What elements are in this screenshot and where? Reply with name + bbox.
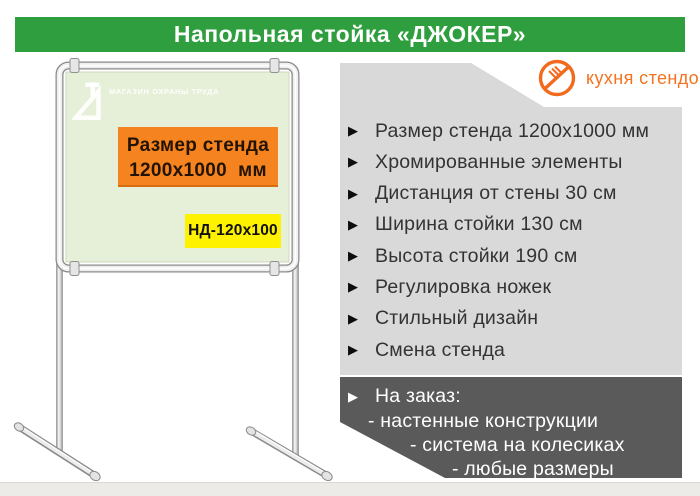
no-kitchen-icon (536, 57, 578, 99)
feature-text: Дистанция от стены 30 см (375, 182, 617, 205)
triangle-bullet-icon: ▶ (348, 342, 364, 358)
custom-order-title-row: ▶ На заказ: (348, 385, 461, 408)
custom-order-item: - любые размеры (452, 457, 625, 481)
features-list: ▶ Размер стенда 1200х1000 мм ▶ Хромирова… (348, 63, 649, 369)
product-flyer: Напольная стойка «ДЖОКЕР» (0, 0, 700, 496)
custom-order-item: - настенные конструкции (368, 409, 625, 433)
feature-item: ▶ Смена стенда (348, 338, 649, 362)
feature-item: ▶ Регулировка ножек (348, 275, 649, 299)
feature-item: ▶ Стильный дизайн (348, 307, 649, 331)
triangle-bullet-icon: ▶ (348, 123, 364, 139)
triangle-bullet-icon: ▶ (348, 311, 364, 327)
feature-item: ▶ Размер стенда 1200х1000 мм (348, 119, 649, 143)
brand-name: кухня стендов (586, 68, 700, 89)
page-bottom-edge (0, 482, 700, 496)
feature-text: Смена стенда (375, 339, 505, 362)
feature-text: Хромированные элементы (375, 151, 623, 174)
triangle-bullet-icon: ▶ (348, 217, 364, 233)
triangle-bullet-icon: ▶ (348, 248, 364, 264)
model-plate: НД-120х100 (185, 214, 281, 248)
brand-logo: кухня стендов (536, 57, 700, 99)
board-logo: МАГАЗИН ОХРАНЫ ТРУДА (72, 80, 219, 122)
right-foot (245, 425, 334, 482)
triangle-bullet-icon: ▶ (348, 154, 364, 170)
size-plate-line1: Размер стенда (118, 133, 278, 158)
feature-text: Стильный дизайн (375, 307, 538, 330)
title-banner: Напольная стойка «ДЖОКЕР» (15, 17, 685, 52)
custom-order-box: ▶ На заказ: - настенные конструкции- сис… (340, 377, 682, 478)
feature-item: ▶ Высота стойки 190 см (348, 244, 649, 268)
page-title: Напольная стойка «ДЖОКЕР» (174, 21, 526, 47)
custom-order-title: На заказ: (375, 385, 461, 408)
feature-text: Высота стойки 190 см (375, 245, 578, 268)
feature-item: ▶ Дистанция от стены 30 см (348, 182, 649, 206)
triangle-bullet-icon: ▶ (348, 279, 364, 295)
feature-text: Регулировка ножек (375, 276, 551, 299)
size-plate-line2: 1200х1000 мм (118, 158, 278, 183)
feature-text: Ширина стойки 130 см (375, 213, 583, 236)
feature-item: ▶ Ширина стойки 130 см (348, 213, 649, 237)
size-plate: Размер стенда 1200х1000 мм (118, 127, 278, 187)
custom-order-list: - настенные конструкции- система на коле… (368, 409, 625, 481)
shop-logo-text: МАГАЗИН ОХРАНЫ ТРУДА (109, 87, 219, 122)
feature-item: ▶ Хромированные элементы (348, 150, 649, 174)
features-panel: ▶ Размер стенда 1200х1000 мм ▶ Хромирова… (340, 63, 682, 375)
shop-logo-icon (72, 80, 102, 122)
triangle-bullet-icon: ▶ (348, 186, 364, 202)
triangle-bullet-icon: ▶ (348, 389, 364, 405)
feature-text: Размер стенда 1200х1000 мм (375, 120, 649, 143)
custom-order-item: - система на колесиках (410, 433, 625, 457)
